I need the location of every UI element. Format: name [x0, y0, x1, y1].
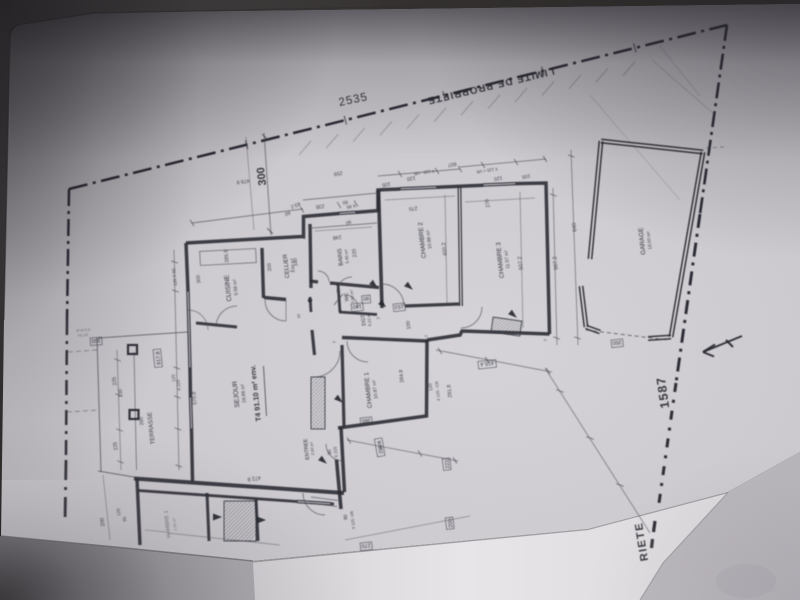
svg-text:270: 270 — [361, 542, 371, 549]
svg-text:200: 200 — [447, 518, 454, 528]
svg-text:100: 100 — [406, 320, 413, 329]
svg-text:130: 130 — [118, 388, 125, 397]
svg-text:105: 105 — [381, 180, 391, 187]
svg-text:270: 270 — [408, 205, 417, 212]
svg-text:347 64: 347 64 — [78, 333, 89, 338]
svg-text:385: 385 — [361, 417, 371, 424]
svg-text:220: 220 — [352, 248, 359, 257]
svg-text:140: 140 — [352, 303, 362, 310]
svg-text:90: 90 — [363, 295, 370, 302]
svg-text:225: 225 — [112, 376, 119, 385]
svg-text:350: 350 — [612, 339, 622, 346]
svg-text:222: 222 — [444, 459, 451, 469]
svg-text:120: 120 — [428, 383, 434, 392]
svg-text:300: 300 — [91, 337, 100, 344]
svg-text:153: 153 — [394, 303, 404, 310]
svg-text:20: 20 — [297, 314, 301, 319]
